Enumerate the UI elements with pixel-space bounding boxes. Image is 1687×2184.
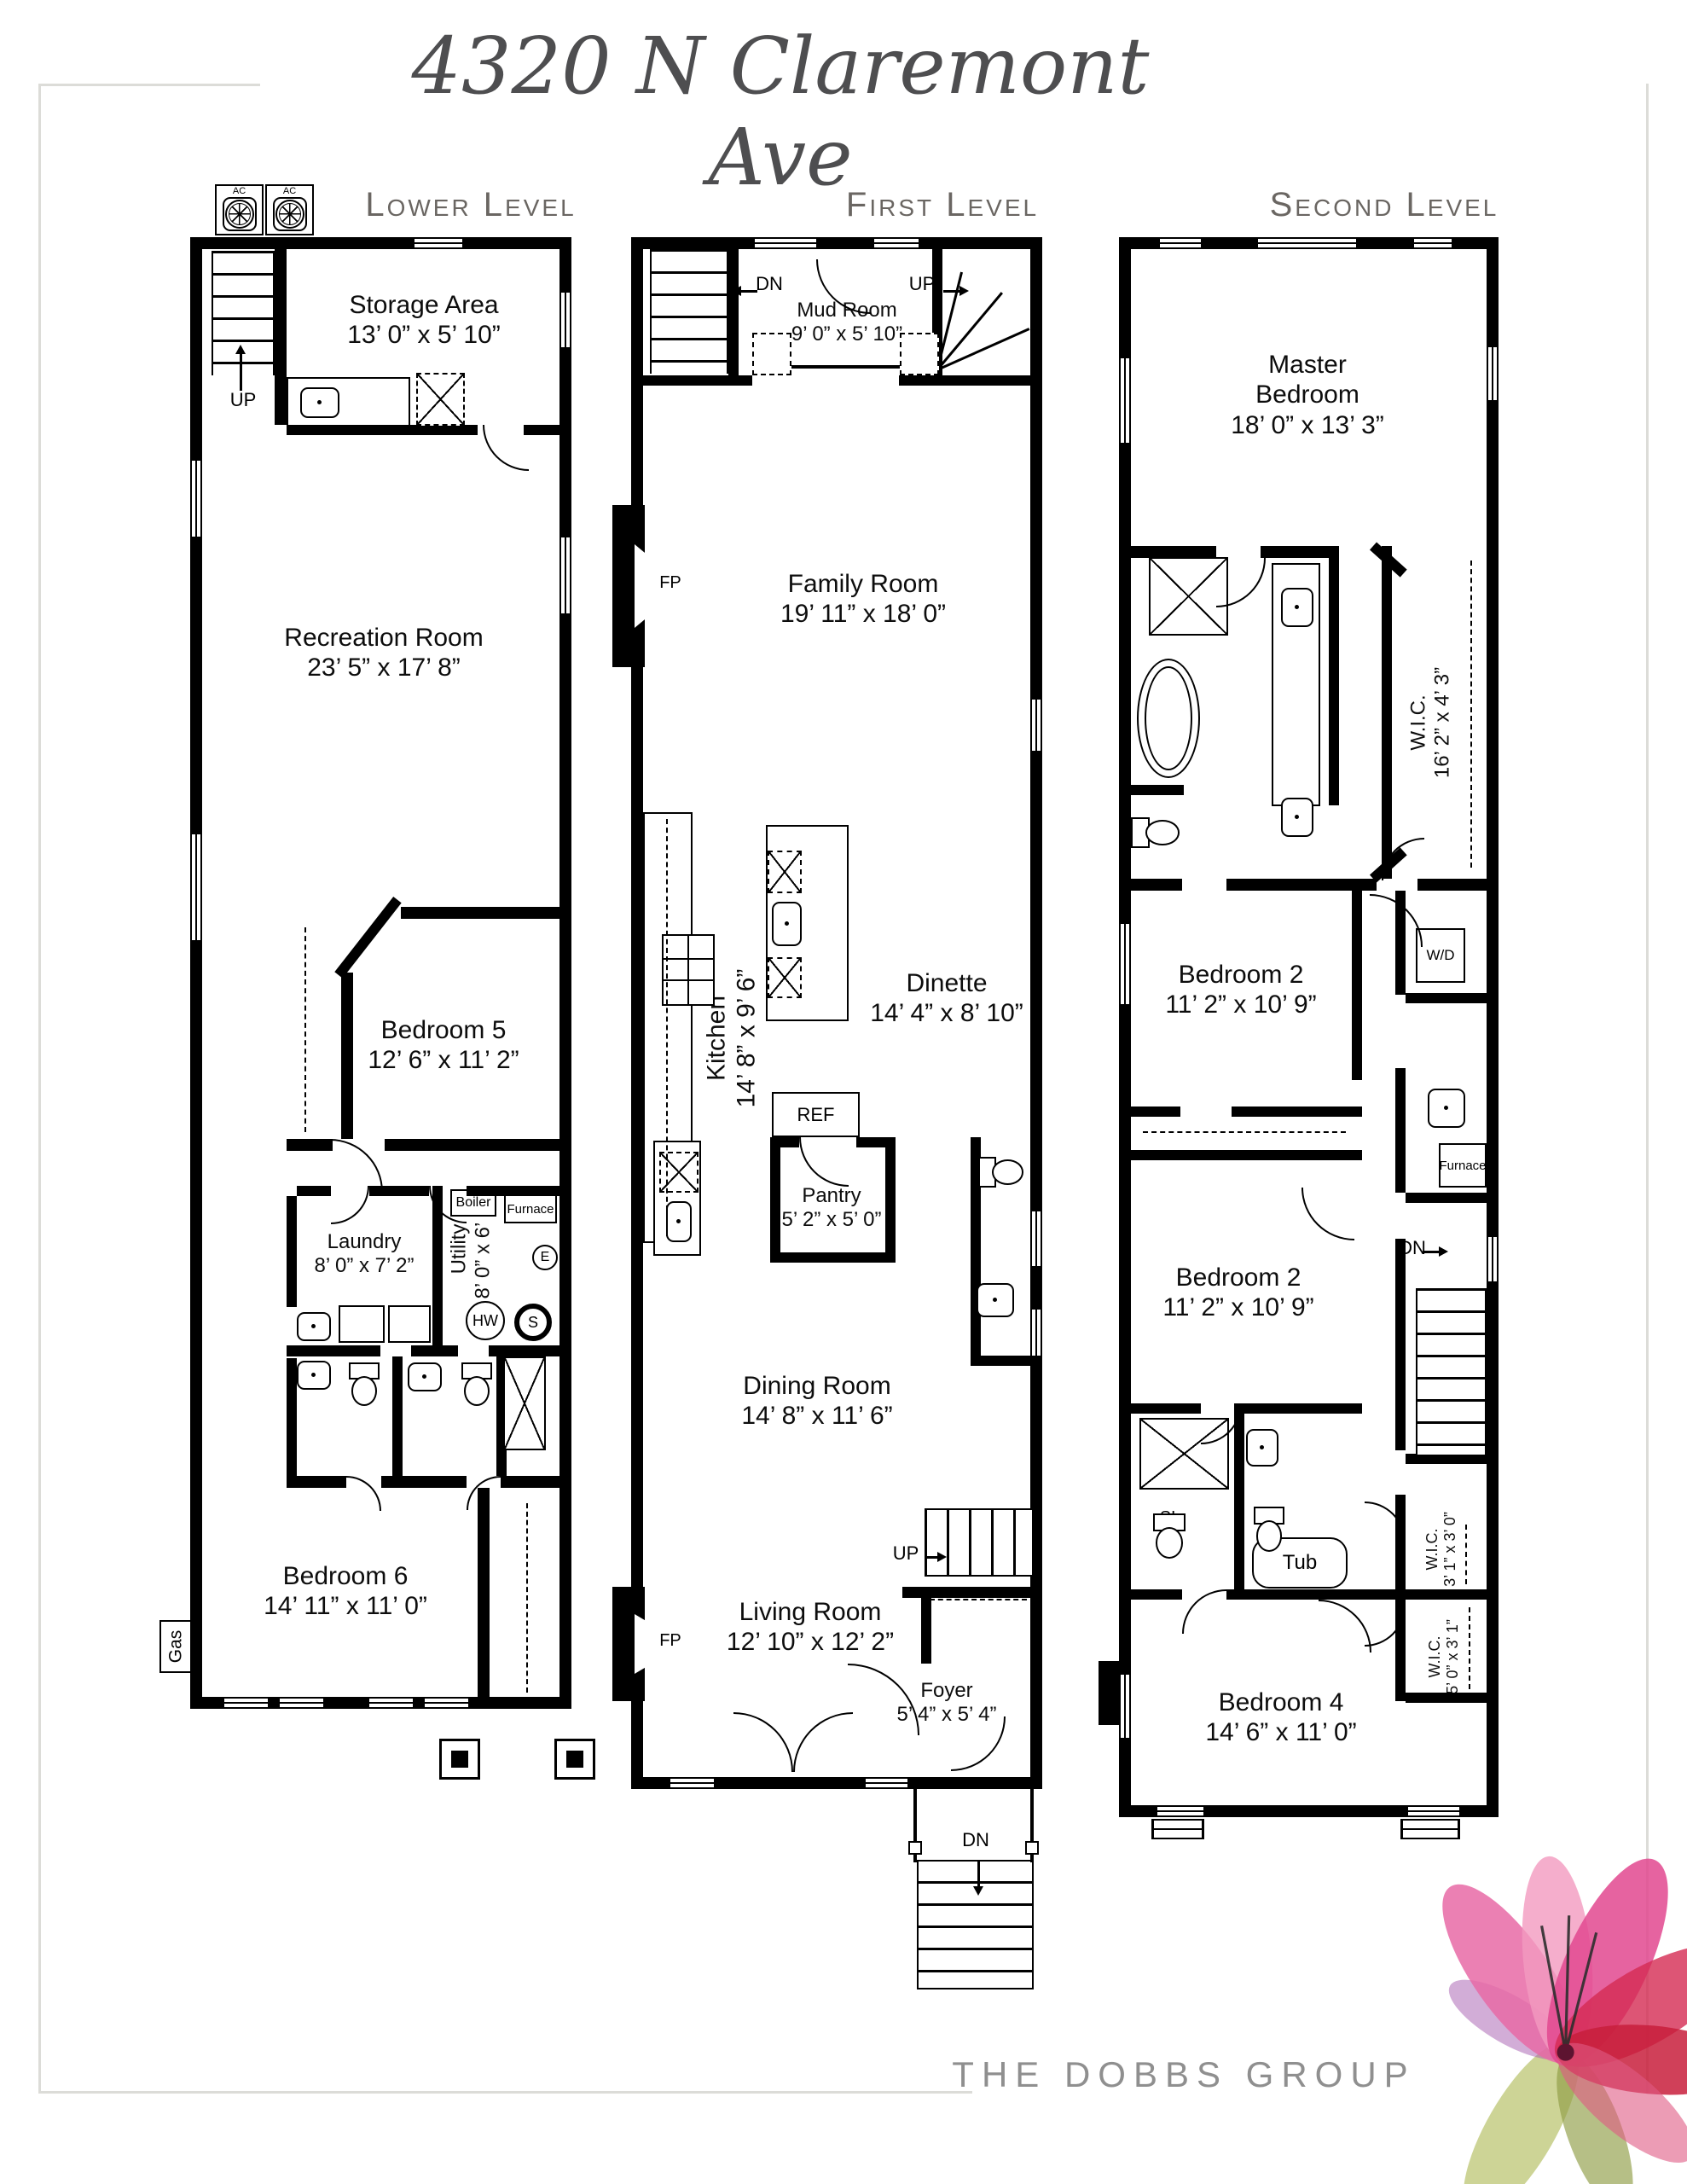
closet-rod bbox=[526, 1503, 528, 1693]
wall bbox=[1131, 546, 1216, 558]
room-dims: 14’ 8” x 11’ 6” bbox=[689, 1401, 945, 1431]
fixture-box bbox=[339, 1305, 385, 1343]
room-name: W.I.C. bbox=[1426, 1619, 1444, 1694]
dashed-appliance bbox=[768, 851, 802, 893]
toilet bbox=[1150, 1513, 1189, 1560]
wall bbox=[287, 1196, 297, 1307]
level-header-lower: Lower Level bbox=[365, 186, 576, 224]
arrow-head bbox=[959, 286, 969, 296]
plan-first-level: DN UP Mud Room 9’ 0” x 5’ 10” Family Roo… bbox=[631, 237, 1042, 1789]
front-steps bbox=[917, 1860, 1034, 1989]
wall bbox=[770, 1137, 780, 1263]
ac-unit: AC bbox=[215, 184, 264, 235]
room-name: Bedroom 4 bbox=[1153, 1687, 1409, 1717]
room-dims: 3’ 1” x 3’ 0” bbox=[1441, 1512, 1459, 1587]
closet-rod bbox=[304, 927, 306, 1132]
window bbox=[190, 832, 202, 943]
door-arc bbox=[1182, 1589, 1226, 1634]
stove bbox=[662, 934, 715, 1006]
sink bbox=[408, 1362, 442, 1391]
room-dims: 8’ 0” x 7’ 2” bbox=[275, 1254, 454, 1278]
arrow-head bbox=[732, 286, 741, 296]
sink bbox=[297, 1312, 331, 1341]
wall bbox=[489, 1345, 559, 1356]
fireplace-label: FP bbox=[659, 1631, 681, 1651]
wall bbox=[643, 375, 752, 386]
shower bbox=[503, 1356, 546, 1450]
room-label-bedroom4: Bedroom 4 14’ 6” x 11’ 0” bbox=[1153, 1687, 1409, 1748]
sink bbox=[297, 1361, 331, 1390]
window bbox=[1030, 1307, 1042, 1358]
door-arc bbox=[848, 1664, 919, 1735]
closet-rod bbox=[930, 1599, 1027, 1600]
arrow-head bbox=[937, 1552, 947, 1562]
chimney-block bbox=[1099, 1661, 1121, 1725]
door-arc bbox=[467, 1476, 501, 1510]
plan-second-level: Master Bedroom 18’ 0” x 13’ 3” W.I.C. 16… bbox=[1119, 237, 1499, 1817]
closet-rod bbox=[1143, 1131, 1346, 1133]
window bbox=[872, 237, 921, 249]
closet-rod bbox=[666, 819, 668, 1236]
window bbox=[668, 1777, 716, 1789]
sink bbox=[977, 1283, 1014, 1317]
wall bbox=[1131, 1107, 1180, 1117]
room-dims: 18’ 0” x 13’ 3” bbox=[1218, 410, 1397, 440]
wall bbox=[1226, 879, 1377, 891]
arrow-line bbox=[977, 1862, 980, 1888]
wall bbox=[1406, 1589, 1487, 1600]
door-arc bbox=[330, 1139, 383, 1192]
stair-winder-line bbox=[936, 328, 1029, 371]
window bbox=[1157, 237, 1203, 249]
wall bbox=[1406, 993, 1487, 1003]
closet-rod bbox=[1470, 561, 1472, 868]
room-label-wic5: W.I.C. 5’ 0” x 3’ 1” bbox=[1426, 1619, 1462, 1694]
washer-dryer-box: W/D bbox=[1416, 928, 1465, 983]
room-label-bedroom2a: Bedroom 2 11’ 2” x 10’ 9” bbox=[1130, 960, 1352, 1020]
room-label-master: Master Bedroom 18’ 0” x 13’ 3” bbox=[1218, 350, 1397, 440]
arrow-line bbox=[240, 352, 242, 391]
window bbox=[1487, 1234, 1499, 1284]
window bbox=[367, 1697, 415, 1709]
bathtub bbox=[1137, 659, 1200, 778]
up-label: UP bbox=[893, 1542, 919, 1565]
room-label-recreation: Recreation Room 23’ 5” x 17’ 8” bbox=[281, 623, 486, 683]
toilet bbox=[458, 1362, 496, 1407]
room-dims: 5’ 0” x 3’ 1” bbox=[1444, 1619, 1462, 1694]
room-dims: 19’ 11” x 18’ 0” bbox=[727, 599, 1000, 629]
hot-water-circle: HW bbox=[466, 1301, 505, 1340]
window bbox=[1412, 237, 1454, 249]
window bbox=[1030, 1209, 1042, 1269]
structural-post bbox=[554, 1739, 595, 1780]
wall bbox=[899, 375, 1032, 386]
room-dims: 14’ 11” x 11’ 0” bbox=[217, 1591, 473, 1621]
room-label-living: Living Room 12’ 10” x 12’ 2” bbox=[682, 1597, 938, 1658]
room-name: W.I.C. bbox=[1423, 1512, 1441, 1587]
room-dims: 23’ 5” x 17’ 8” bbox=[281, 653, 486, 682]
room-label-family: Family Room 19’ 11” x 18’ 0” bbox=[727, 569, 1000, 630]
room-label-bedroom2b: Bedroom 2 11’ 2” x 10’ 9” bbox=[1128, 1263, 1349, 1323]
door-arc bbox=[799, 1137, 849, 1187]
toilet bbox=[978, 1154, 1024, 1190]
room-label-laundry: Laundry 8’ 0” x 7’ 2” bbox=[275, 1230, 454, 1279]
closet-rod bbox=[1469, 1607, 1470, 1689]
sink bbox=[1428, 1089, 1465, 1128]
door-arc bbox=[331, 1186, 369, 1224]
wall bbox=[1234, 1403, 1244, 1591]
wall bbox=[341, 973, 353, 1139]
room-name: Storage Area bbox=[296, 290, 552, 320]
closet-rod bbox=[1465, 1525, 1467, 1584]
room-name: Bedroom 2 bbox=[1130, 960, 1352, 990]
room-dims: 12’ 10” x 12’ 2” bbox=[682, 1627, 938, 1657]
wall bbox=[1329, 546, 1339, 805]
refrigerator-box: REF bbox=[772, 1092, 860, 1137]
up-label: UP bbox=[909, 273, 936, 295]
electrical-panel-circle: E bbox=[532, 1245, 558, 1270]
arrow-line bbox=[943, 290, 961, 293]
room-dims: 16’ 2” x 4’ 3” bbox=[1431, 667, 1455, 778]
window bbox=[422, 1697, 471, 1709]
room-name: Bedroom 2 bbox=[1128, 1263, 1349, 1292]
sink bbox=[300, 387, 339, 418]
wall bbox=[1406, 1454, 1487, 1464]
room-label-wic-master: W.I.C. 16’ 2” x 4’ 3” bbox=[1407, 667, 1456, 778]
wall bbox=[1406, 1193, 1487, 1203]
wall bbox=[401, 907, 559, 919]
sink bbox=[772, 902, 802, 946]
door-arc bbox=[1301, 1188, 1354, 1240]
window bbox=[1255, 237, 1359, 249]
room-name: Bedroom 6 bbox=[217, 1561, 473, 1591]
wall bbox=[524, 425, 559, 435]
room-name: Dinette bbox=[836, 968, 1058, 998]
room-dims: 13’ 0” x 5’ 10” bbox=[296, 320, 552, 350]
room-name: Family Room bbox=[727, 569, 1000, 599]
wall bbox=[381, 1476, 467, 1488]
wall bbox=[1131, 785, 1184, 795]
wall bbox=[1131, 1150, 1362, 1160]
arrow-head bbox=[973, 1886, 983, 1896]
window bbox=[412, 237, 465, 249]
page-title: 4320 N Claremont Ave bbox=[350, 20, 1211, 203]
frame-top bbox=[38, 84, 260, 86]
room-dims: 14’ 6” x 11’ 0” bbox=[1153, 1717, 1409, 1747]
newel-post bbox=[908, 1841, 922, 1855]
wall bbox=[1242, 1403, 1362, 1414]
window bbox=[1151, 1819, 1204, 1839]
stairs bbox=[650, 249, 728, 374]
sump-circle: S bbox=[514, 1304, 552, 1341]
wall bbox=[392, 1356, 403, 1476]
room-name: Laundry bbox=[275, 1230, 454, 1254]
wall bbox=[728, 249, 739, 375]
wall bbox=[275, 249, 287, 425]
door-arc bbox=[733, 1712, 793, 1772]
window bbox=[752, 237, 819, 249]
window bbox=[1030, 697, 1042, 753]
toilet bbox=[345, 1362, 383, 1407]
ac-label: AC bbox=[217, 186, 262, 196]
wall bbox=[770, 1252, 896, 1263]
dashed-appliance bbox=[416, 373, 465, 426]
room-name: Master Bedroom bbox=[1218, 350, 1397, 410]
level-header-second: Second Level bbox=[1270, 186, 1499, 224]
structural-post bbox=[439, 1739, 480, 1780]
wall bbox=[1382, 546, 1392, 879]
room-name: Bedroom 5 bbox=[333, 1015, 554, 1045]
stairs bbox=[925, 1508, 1032, 1577]
arrow-line bbox=[739, 290, 757, 293]
sink bbox=[1281, 798, 1313, 837]
window bbox=[1155, 1805, 1206, 1817]
window bbox=[1119, 356, 1131, 445]
room-label-bedroom6: Bedroom 6 14’ 11” x 11’ 0” bbox=[217, 1561, 473, 1622]
wall bbox=[1395, 1239, 1406, 1450]
frame-bottom bbox=[38, 2091, 972, 2094]
wall bbox=[287, 1358, 297, 1488]
window bbox=[190, 458, 202, 539]
room-label-storage: Storage Area 13’ 0” x 5’ 10” bbox=[296, 290, 552, 351]
wall bbox=[902, 1587, 1032, 1598]
wall bbox=[287, 1139, 333, 1151]
arrow-line bbox=[1423, 1251, 1441, 1253]
wall bbox=[1131, 1589, 1182, 1600]
room-dims: 11’ 2” x 10’ 9” bbox=[1128, 1292, 1349, 1322]
room-name: W.I.C. bbox=[1407, 667, 1431, 778]
dn-label: DN bbox=[756, 273, 783, 295]
room-dims: 14’ 4” x 8’ 10” bbox=[836, 998, 1058, 1028]
flower-graphic bbox=[1352, 1830, 1687, 2184]
dashed-appliance bbox=[659, 1152, 699, 1193]
wall bbox=[1226, 1589, 1395, 1600]
frame-left bbox=[38, 84, 41, 2094]
wall bbox=[478, 1488, 490, 1697]
room-dims: 11’ 2” x 10’ 9” bbox=[1130, 990, 1352, 1019]
furnace-box: Furnace bbox=[1439, 1143, 1487, 1188]
window bbox=[1119, 921, 1131, 1007]
window bbox=[1487, 345, 1499, 403]
dashed-cubby bbox=[900, 333, 939, 375]
wall bbox=[287, 1345, 380, 1356]
toilet bbox=[1250, 1507, 1288, 1553]
window bbox=[277, 1697, 326, 1709]
wall bbox=[297, 1186, 331, 1196]
wall bbox=[1352, 891, 1362, 1080]
fixture-box bbox=[388, 1305, 431, 1343]
room-label-dinette: Dinette 14’ 4” x 8’ 10” bbox=[836, 968, 1058, 1029]
room-name: Living Room bbox=[682, 1597, 938, 1627]
gas-label: Gas bbox=[165, 1630, 186, 1664]
frame-right bbox=[1646, 84, 1649, 2094]
wall bbox=[1131, 1403, 1201, 1414]
divider-line bbox=[791, 365, 900, 369]
dashed-cubby bbox=[752, 333, 791, 375]
room-label-bedroom5: Bedroom 5 12’ 6” x 11’ 2” bbox=[333, 1015, 554, 1076]
room-label-wic3: W.I.C. 3’ 1” x 3’ 0” bbox=[1423, 1512, 1459, 1587]
furnace-box: Furnace bbox=[504, 1194, 557, 1223]
newel-post bbox=[1025, 1841, 1039, 1855]
window bbox=[863, 1777, 910, 1789]
stairs bbox=[212, 251, 275, 375]
level-header-first: First Level bbox=[846, 186, 1039, 224]
sink bbox=[1246, 1429, 1278, 1467]
wall bbox=[1406, 1693, 1487, 1703]
toilet bbox=[1131, 815, 1180, 851]
room-label-dining: Dining Room 14’ 8” x 11’ 6” bbox=[689, 1371, 945, 1432]
fan-icon bbox=[223, 197, 257, 231]
arrow-head bbox=[235, 345, 246, 354]
wall bbox=[971, 1356, 1032, 1366]
window bbox=[1119, 1672, 1131, 1740]
room-name: Recreation Room bbox=[281, 623, 486, 653]
room-dims: 14’ 8” x 9’ 6” bbox=[732, 969, 762, 1108]
sink bbox=[666, 1201, 692, 1242]
wall bbox=[467, 1186, 559, 1196]
room-dims: 12’ 6” x 11’ 2” bbox=[333, 1045, 554, 1075]
door-arc bbox=[483, 425, 529, 471]
floorplan-page: { "page": { "title": "4320 N Claremont A… bbox=[0, 0, 1687, 2184]
wall bbox=[385, 1139, 559, 1151]
wall bbox=[287, 1476, 346, 1488]
window bbox=[222, 1697, 270, 1709]
window bbox=[559, 535, 571, 616]
wall bbox=[1131, 879, 1182, 891]
fan-icon bbox=[273, 197, 307, 231]
dn-label: DN bbox=[962, 1829, 989, 1851]
wall bbox=[411, 1345, 458, 1356]
door-arc bbox=[1319, 1600, 1371, 1653]
wall bbox=[1261, 546, 1339, 558]
plan-lower-level: Storage Area 13’ 0” x 5’ 10” COOLER UP R… bbox=[190, 237, 571, 1709]
wall bbox=[885, 1137, 896, 1263]
up-label: UP bbox=[230, 389, 257, 411]
wall bbox=[501, 1476, 559, 1488]
window bbox=[559, 290, 571, 350]
room-name: Dining Room bbox=[689, 1371, 945, 1401]
brand-text: THE DOBBS GROUP bbox=[952, 2054, 1415, 2095]
dashed-appliance bbox=[768, 957, 802, 998]
door-arc bbox=[1216, 558, 1266, 607]
door-arc bbox=[951, 1716, 1006, 1771]
wall bbox=[1232, 1107, 1362, 1117]
gas-meter-box: Gas bbox=[159, 1620, 192, 1673]
arrow-head bbox=[1439, 1246, 1448, 1257]
fireplace-label: FP bbox=[659, 573, 681, 593]
wall bbox=[334, 897, 401, 979]
sink bbox=[1281, 588, 1313, 627]
stairs bbox=[1416, 1288, 1487, 1455]
ac-label: AC bbox=[267, 186, 312, 196]
wall bbox=[1417, 879, 1487, 891]
door-arc bbox=[793, 1712, 853, 1772]
door-arc bbox=[1370, 894, 1423, 947]
door-arc bbox=[346, 1476, 381, 1511]
wall bbox=[1395, 1068, 1406, 1193]
wall bbox=[921, 1598, 931, 1664]
ac-unit: AC bbox=[265, 184, 314, 235]
window bbox=[1406, 1805, 1462, 1817]
